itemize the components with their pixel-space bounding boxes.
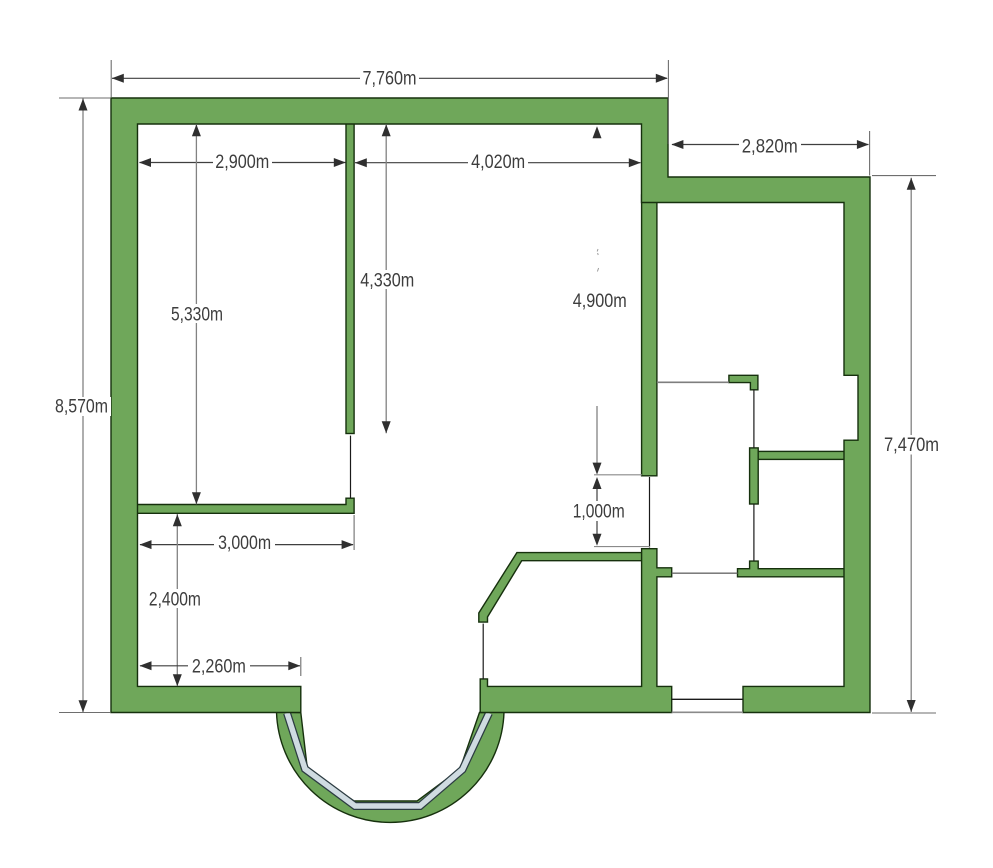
svg-text:1,000m: 1,000m [573, 502, 625, 523]
svg-text:7,470m: 7,470m [884, 435, 939, 456]
svg-text:8,570m: 8,570m [55, 397, 108, 418]
svg-text:3,000m: 3,000m [218, 533, 271, 554]
svg-text:7,760m: 7,760m [363, 68, 417, 89]
svg-text:5,330m: 5,330m [171, 305, 223, 326]
svg-text:4,020m: 4,020m [471, 152, 525, 173]
svg-text:4,900m: 4,900m [573, 291, 627, 312]
svg-text:2,400m: 2,400m [149, 590, 201, 611]
svg-text:2,820m: 2,820m [742, 137, 798, 158]
svg-text:4,330m: 4,330m [360, 271, 414, 292]
svg-text:2,260m: 2,260m [192, 656, 246, 677]
svg-text:2,900m: 2,900m [215, 152, 269, 173]
